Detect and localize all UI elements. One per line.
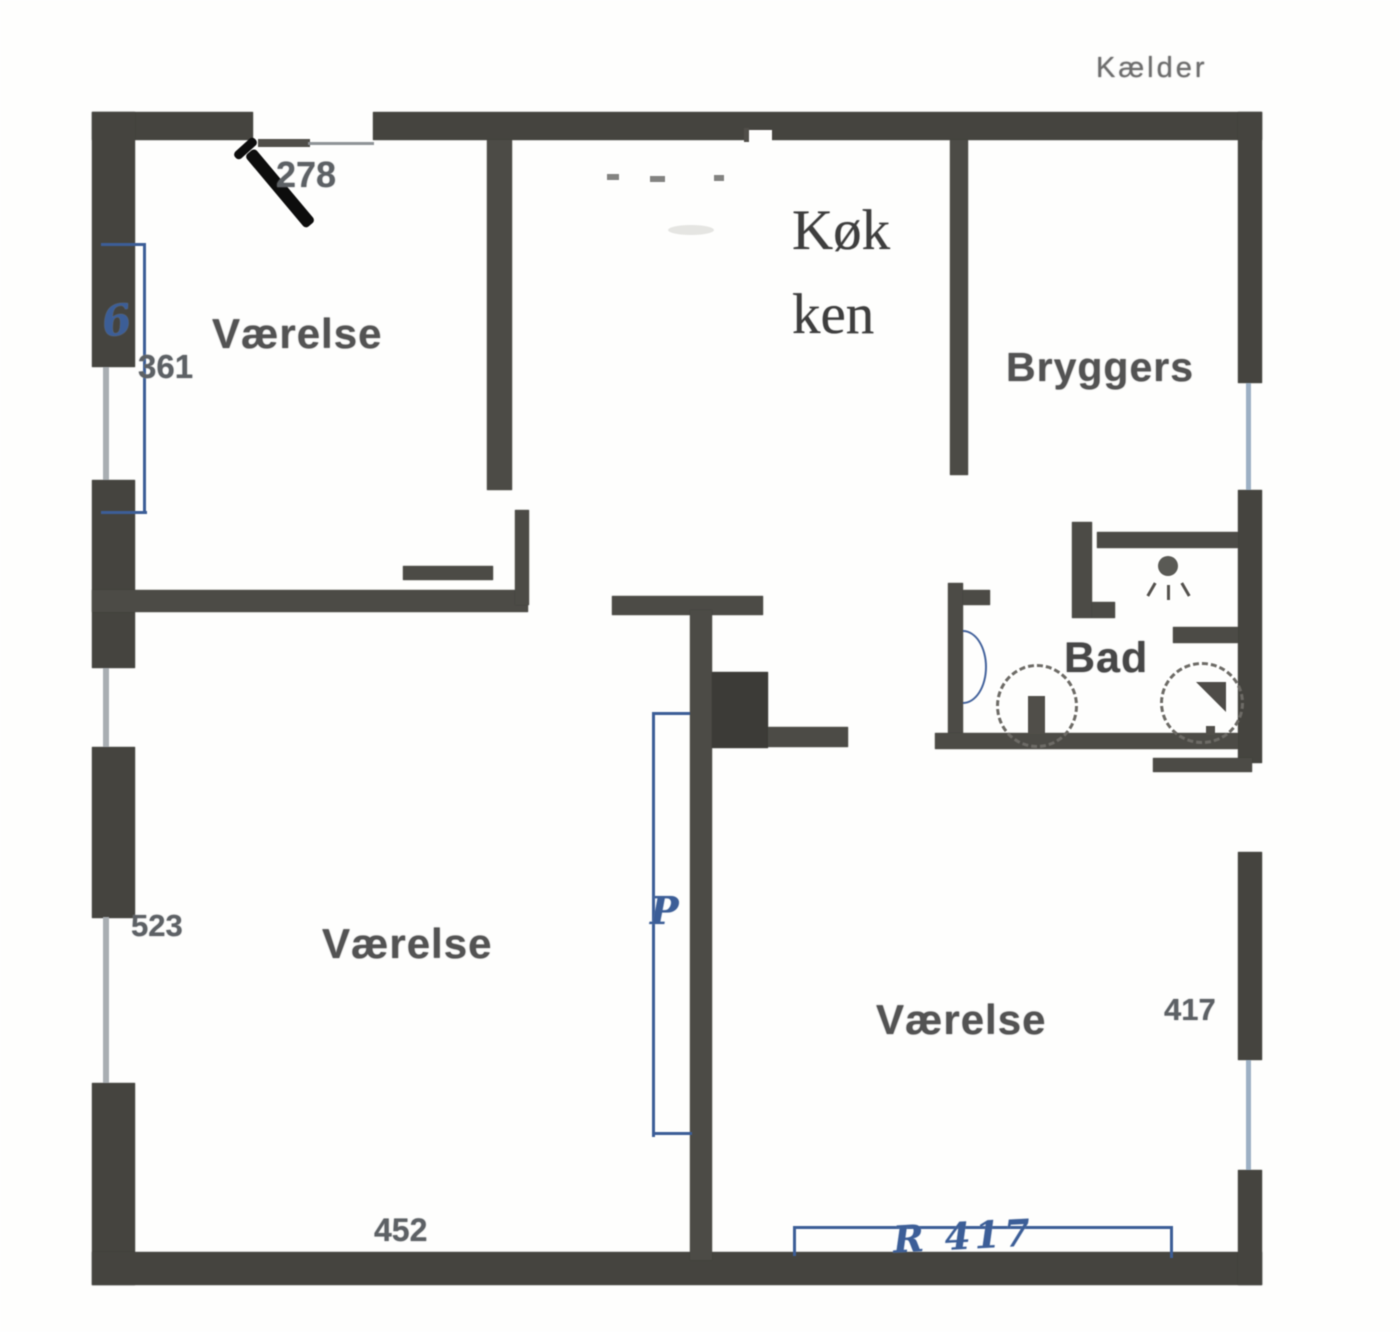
wall-bottom	[92, 1252, 1262, 1285]
wall-kitchen-east	[950, 140, 968, 475]
measure-bottom-tick-right	[1170, 1226, 1173, 1258]
wall-left-2	[92, 480, 135, 668]
sink-drain-dot	[1206, 726, 1215, 735]
dimension-window-nw: 361	[138, 348, 193, 386]
wall-bad-west	[948, 583, 963, 747]
wall-door-jamb-vert	[515, 510, 529, 605]
wall-top-main	[373, 112, 1262, 140]
wall-right-3	[1238, 852, 1262, 1060]
wall-center-top	[612, 596, 763, 615]
plan-title: Kælder	[1096, 52, 1208, 85]
measure-bottom-tick-left	[793, 1226, 796, 1256]
wall-right-4	[1238, 1170, 1262, 1285]
window-left-low	[103, 917, 109, 1083]
dimension-door-top: 278	[276, 154, 336, 196]
measure-center-tick-bottom	[652, 1132, 692, 1135]
scan-artifact	[607, 174, 619, 180]
pen-mark-center: P	[650, 888, 679, 933]
kitchen-label-line1: Køk	[792, 198, 890, 263]
kitchen-label-line2: ken	[792, 282, 874, 347]
window-right-low	[1246, 1060, 1251, 1170]
scan-artifact	[714, 175, 724, 181]
wall-bad-north	[1097, 532, 1238, 548]
shower-spray-right	[1180, 582, 1190, 596]
room-label-nw: Værelse	[212, 310, 382, 358]
wall-right-1	[1238, 112, 1262, 383]
sink-pointer	[1196, 682, 1226, 712]
scan-artifact	[668, 225, 714, 235]
room-label-bryggers: Bryggers	[1006, 344, 1194, 391]
wall-kitchen-west	[487, 140, 512, 490]
dimension-window-se: 417	[1164, 992, 1216, 1028]
wall-divider-west	[92, 590, 528, 612]
wall-left-3	[92, 747, 135, 918]
measure-left-tick-top	[101, 243, 145, 246]
shower-spray-left	[1146, 582, 1156, 596]
wall-right-2	[1238, 490, 1262, 763]
window-left-mid	[103, 668, 109, 747]
scan-notch-tick	[744, 128, 749, 142]
door-leaf-top	[258, 139, 310, 147]
pen-mark-bottom-se: R 417	[892, 1210, 1035, 1261]
wall-bad-mid-stub	[1173, 627, 1238, 643]
door-swing-arc	[963, 630, 987, 704]
window-right-top	[1246, 383, 1251, 490]
wall-bad-niche-vert	[1072, 522, 1092, 618]
wall-bad-west-stub	[963, 590, 990, 605]
room-label-bad: Bad	[1064, 634, 1148, 683]
wall-bad-niche-foot	[1092, 602, 1115, 618]
measure-center-tick-top	[652, 712, 690, 715]
toilet-tank	[1028, 696, 1045, 734]
wall-center-vertical	[690, 610, 712, 1260]
wall-below-bad	[1153, 758, 1252, 772]
scan-notch	[748, 130, 772, 142]
door-top-threshold	[308, 142, 374, 145]
wall-chimney-stub	[768, 727, 848, 747]
window-left-top	[103, 367, 109, 480]
dimension-wall-sw: 523	[131, 908, 183, 944]
floor-plan-scan: Kælder	[0, 0, 1400, 1332]
shower-spray-mid	[1167, 585, 1170, 600]
room-label-se: Værelse	[876, 996, 1046, 1044]
measure-left-tick-bottom	[101, 511, 147, 514]
dimension-bottom-sw: 452	[374, 1212, 427, 1249]
wall-door-stub	[403, 566, 493, 580]
chimney-block	[712, 672, 768, 748]
shower-head-icon	[1158, 556, 1178, 576]
room-label-sw: Værelse	[322, 920, 492, 968]
scan-artifact	[650, 176, 665, 182]
